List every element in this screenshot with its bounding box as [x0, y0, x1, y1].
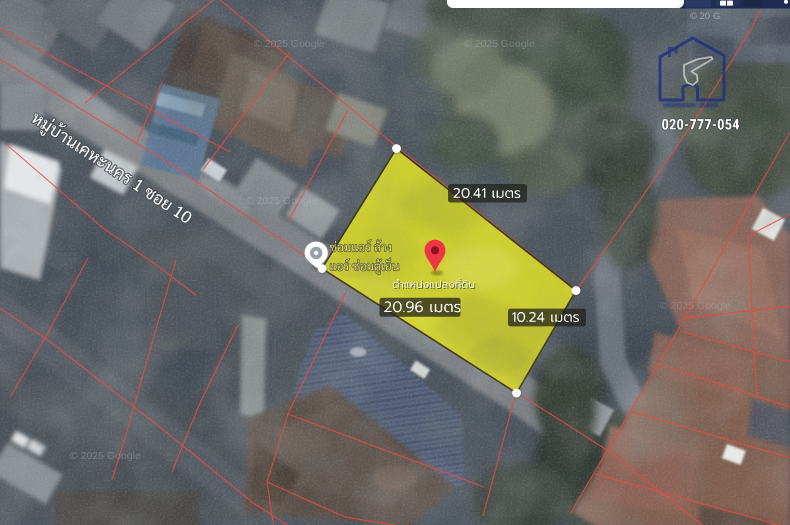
- svg-text:© 2025 Google: © 2025 Google: [70, 450, 141, 462]
- svg-text:© 2025 Google: © 2025 Google: [246, 195, 317, 207]
- svg-text:© 2025 Google: © 2025 Google: [254, 38, 325, 50]
- svg-text:© 2025 Google: © 2025 Google: [464, 38, 535, 50]
- svg-text:© 20 G: © 20 G: [690, 11, 720, 22]
- svg-text:© 2025 Google: © 2025 Google: [660, 300, 731, 312]
